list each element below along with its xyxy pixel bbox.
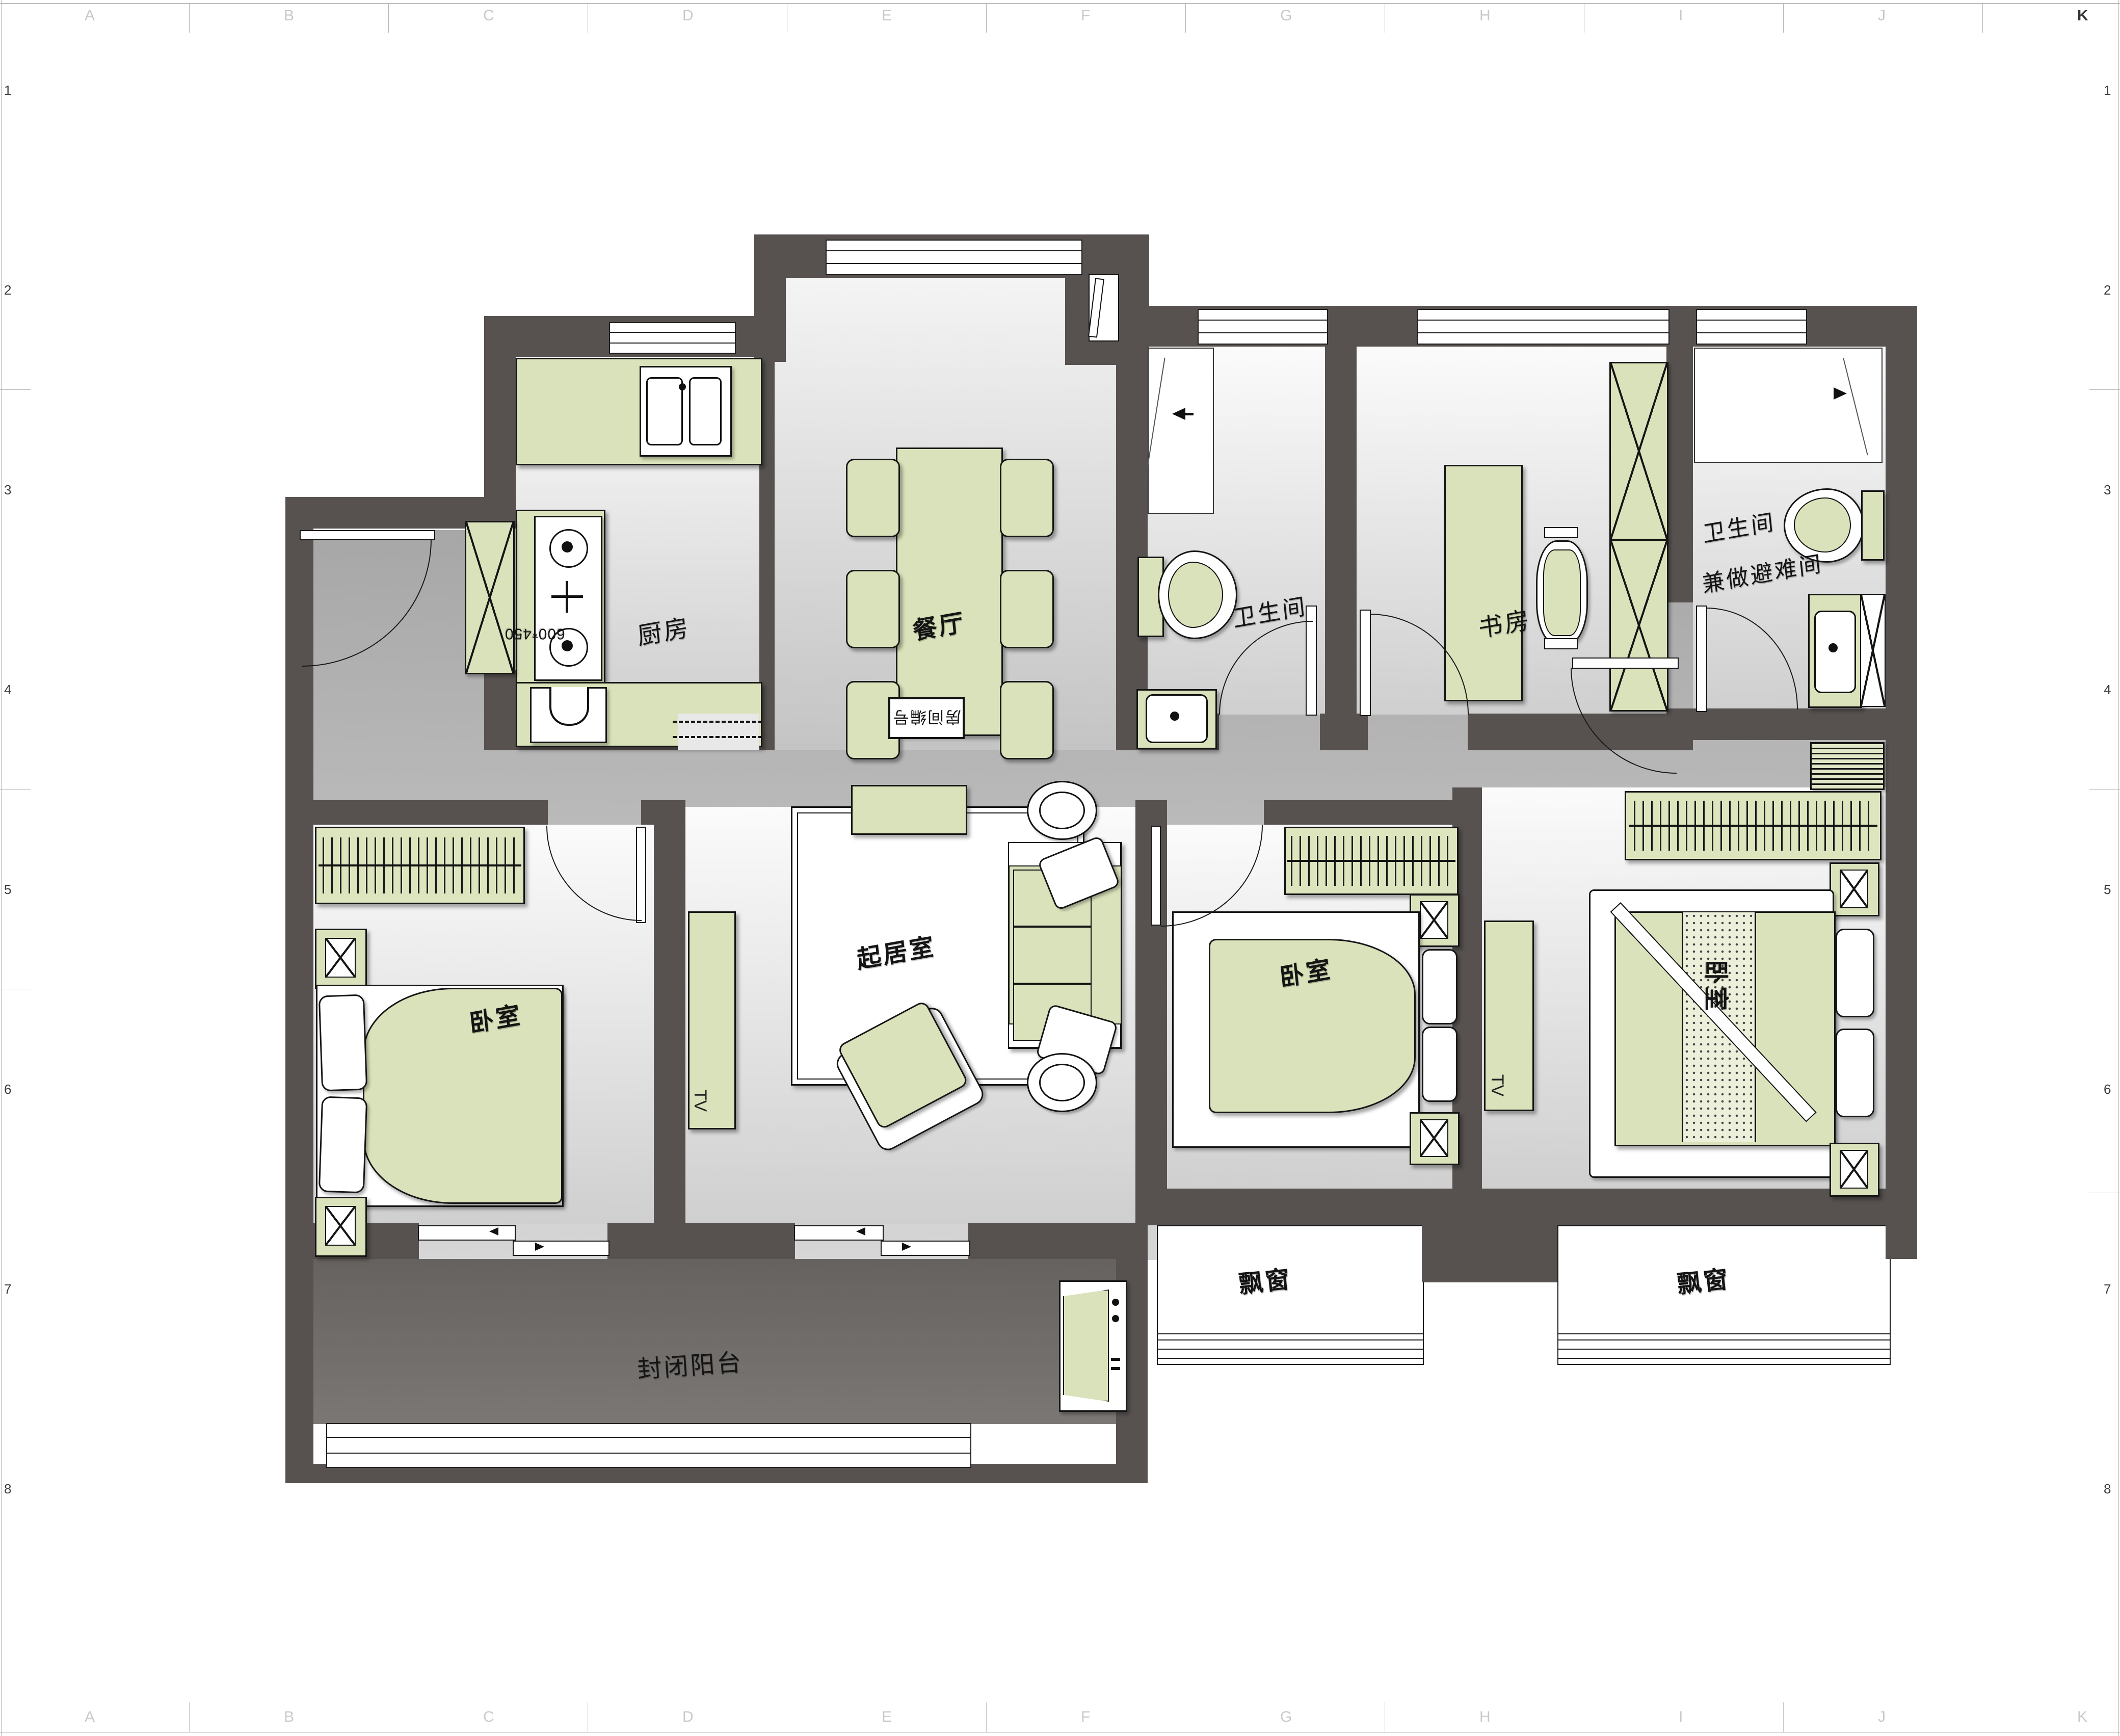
bay-window-label: 飘窗	[1675, 1259, 1732, 1300]
floorplan-sheet: A B C D E F G H I J K A B C D E F G H I …	[0, 0, 2120, 1736]
burner-icon	[562, 541, 573, 553]
shower-head-icon	[1185, 413, 1194, 415]
grid-tick	[588, 1702, 588, 1732]
wall-segment	[484, 670, 516, 719]
faucet	[679, 383, 686, 390]
window	[826, 240, 1082, 275]
dining-chair	[1000, 570, 1054, 648]
wall-segment	[484, 316, 516, 499]
grid-number: 7	[4, 1281, 11, 1297]
lamp-icon	[1840, 1150, 1868, 1189]
side-table	[1027, 1053, 1097, 1112]
grid-number: 2	[4, 282, 11, 298]
room-label-bedroom-master: 卧室	[1701, 960, 1736, 1013]
wardrobe	[1284, 827, 1459, 895]
corridor-tag-box: 房间编号	[888, 697, 965, 739]
grid-letter: J	[1878, 7, 1886, 24]
washer-knob	[1112, 1299, 1119, 1306]
duct-shaft	[465, 521, 515, 674]
grid-letter: K	[2077, 7, 2088, 24]
washing-machine-door	[1063, 1290, 1109, 1402]
grid-letter: G	[1280, 1708, 1292, 1726]
room-label-balcony: 封闭阳台	[636, 1342, 744, 1385]
lamp-icon	[1420, 1119, 1448, 1157]
balcony-window	[326, 1423, 971, 1468]
sliding-door-leaf	[418, 1225, 516, 1241]
balcony-floor	[313, 1259, 1117, 1424]
grid-letter: D	[682, 7, 694, 24]
window	[1198, 309, 1328, 345]
washer-knob	[1112, 1315, 1119, 1322]
bay-window-glazing	[1557, 1333, 1891, 1365]
dining-chair	[846, 570, 900, 648]
door-leaf	[1572, 657, 1679, 669]
grid-tick	[2089, 389, 2120, 390]
kitchen-unit-glyph	[549, 687, 589, 726]
grid-letter: C	[483, 7, 494, 24]
washer-knob	[1111, 1358, 1120, 1361]
grid-letter: I	[1679, 7, 1683, 24]
lamp-icon	[1840, 870, 1868, 908]
grid-tick	[986, 3, 987, 33]
grid-number: 6	[2104, 1082, 2111, 1097]
lamp-icon	[1420, 901, 1448, 939]
grid-number: 8	[4, 1481, 11, 1497]
grid-letter: E	[882, 1708, 892, 1726]
chair-armrest	[1544, 527, 1578, 538]
sliding-door-leaf	[794, 1225, 884, 1241]
radiator	[1810, 742, 1885, 790]
shower-head-icon	[1834, 387, 1847, 400]
grid-tick	[2089, 1193, 2120, 1193]
lamp-icon	[325, 938, 356, 978]
sliding-door-track	[673, 736, 762, 738]
grid-tick	[986, 1702, 987, 1732]
grid-tick	[189, 3, 190, 33]
grid-tick	[388, 3, 389, 33]
ruler-line-right	[2118, 0, 2119, 1736]
slide-arrow-icon	[856, 1227, 865, 1235]
dining-table	[896, 448, 1003, 736]
kitchen-door-opening	[678, 714, 759, 750]
grid-number: 4	[2104, 682, 2111, 698]
wall-segment	[1357, 714, 1368, 750]
washer-knob	[1111, 1367, 1120, 1370]
grid-letter: C	[483, 1708, 494, 1726]
wall-segment	[1320, 714, 1357, 750]
shower-head-icon	[1172, 408, 1185, 420]
grid-letter: E	[882, 7, 892, 24]
tv-label: TV	[690, 1090, 710, 1112]
grid-number: 5	[2104, 882, 2111, 898]
grid-letter: H	[1479, 7, 1491, 24]
bay-window-glazing	[1157, 1333, 1424, 1365]
dimension-annotation: 600*450	[505, 625, 565, 642]
grid-tick	[189, 1702, 190, 1732]
grid-letter: B	[284, 7, 294, 24]
wardrobe-rod	[1629, 825, 1877, 827]
grid-number: 1	[4, 83, 11, 98]
wardrobe	[1625, 791, 1881, 860]
grid-letter: F	[1081, 7, 1090, 24]
pillow	[1422, 1027, 1457, 1102]
door-leaf	[300, 530, 435, 540]
slide-arrow-icon	[902, 1243, 911, 1251]
dining-chair	[846, 459, 900, 537]
pillow	[319, 1096, 368, 1193]
wall-segment	[1482, 1189, 1890, 1225]
grid-letter: I	[1679, 1708, 1683, 1726]
wall-segment	[654, 800, 685, 1224]
grid-letter: A	[85, 1708, 95, 1726]
grid-tick	[1385, 3, 1385, 33]
faucet	[1170, 712, 1179, 721]
lamp-icon	[325, 1206, 356, 1246]
grid-letter: B	[284, 1708, 294, 1726]
toilet-seat	[1794, 497, 1851, 553]
ac-platform	[1450, 1282, 1554, 1368]
wardrobe	[315, 827, 525, 904]
sink-basin	[689, 377, 722, 445]
grid-number: 8	[2104, 1481, 2111, 1497]
study-chair-cushion	[1543, 549, 1581, 636]
wall-segment	[313, 800, 548, 825]
side-table	[1027, 781, 1097, 840]
chair-armrest	[1544, 638, 1578, 649]
wardrobe-rod	[319, 864, 521, 866]
duct-shaft	[1860, 594, 1886, 707]
wall-segment	[1886, 306, 1917, 1259]
pillow	[319, 994, 368, 1091]
wall-segment	[1693, 708, 1917, 740]
grid-number: 7	[2104, 1281, 2111, 1297]
grid-letter: K	[2077, 1708, 2087, 1726]
grid-tick	[787, 3, 787, 33]
wall-segment	[607, 1223, 795, 1259]
wall-segment	[1422, 1225, 1557, 1282]
sliding-door-track	[673, 721, 762, 723]
burner-icon	[566, 581, 568, 613]
grid-letter: H	[1479, 1708, 1491, 1726]
door-leaf	[1696, 606, 1707, 712]
grid-tick	[0, 789, 31, 790]
wall-segment	[1325, 306, 1357, 715]
ruler-line-left	[1, 0, 2, 1736]
ruler-line-top	[0, 3, 2120, 4]
grid-letter: A	[85, 7, 95, 24]
side-table-ring	[1039, 1064, 1085, 1102]
sink-basin	[646, 377, 683, 445]
grid-tick	[588, 3, 588, 33]
bay-window-label: 飘窗	[1237, 1259, 1293, 1300]
faucet	[1828, 643, 1838, 652]
grid-number: 3	[4, 482, 11, 498]
grid-letter: D	[682, 1708, 694, 1726]
coffee-bench	[851, 785, 967, 835]
wall-segment	[285, 528, 313, 1483]
grid-letter: F	[1081, 1708, 1090, 1726]
grid-number: 6	[4, 1082, 11, 1097]
dining-chair	[1000, 459, 1054, 537]
window	[1417, 309, 1669, 345]
pillow	[1836, 929, 1874, 1017]
door-leaf	[1360, 610, 1371, 716]
sliding-door-leaf	[881, 1241, 970, 1256]
grid-tick	[1584, 3, 1584, 33]
tv-label: TV	[1487, 1074, 1507, 1096]
wardrobe-rod	[1287, 860, 1455, 862]
wall-segment	[1264, 800, 1482, 825]
grid-number: 4	[4, 682, 11, 698]
side-table-ring	[1039, 792, 1085, 830]
window	[1696, 309, 1807, 345]
slide-arrow-icon	[489, 1227, 498, 1235]
grid-number: 5	[4, 882, 11, 898]
grid-tick	[1185, 3, 1186, 33]
dining-chair	[1000, 681, 1054, 759]
wall-segment	[1666, 306, 1693, 602]
sliding-door-leaf	[513, 1241, 609, 1256]
grid-number: 1	[2104, 83, 2111, 98]
corridor-tag-text: 房间编号	[892, 706, 961, 730]
bed-duvet	[363, 988, 563, 1204]
door-leaf	[1151, 826, 1161, 926]
window	[609, 322, 736, 354]
pillow	[1422, 949, 1457, 1024]
toilet-tank	[1861, 490, 1885, 561]
grid-tick	[1982, 3, 1983, 33]
study-cabinet	[1609, 362, 1668, 540]
grid-letter: G	[1280, 7, 1292, 24]
grid-number: 3	[2104, 482, 2111, 498]
grid-tick	[1783, 1702, 1784, 1732]
grid-tick	[2089, 789, 2120, 790]
grid-tick	[0, 389, 31, 390]
ruler-line-bottom	[0, 1732, 2120, 1732]
sofa-cushion	[1013, 927, 1092, 984]
grid-tick	[1385, 1702, 1385, 1732]
grid-letter: J	[1878, 1708, 1886, 1726]
pillow	[1836, 1029, 1874, 1117]
grid-number: 2	[2104, 282, 2111, 298]
shower-area	[1148, 348, 1214, 514]
slide-arrow-icon	[535, 1243, 544, 1251]
grid-tick	[1783, 3, 1784, 33]
wall-segment	[1147, 1189, 1482, 1225]
grid-tick	[0, 989, 31, 989]
